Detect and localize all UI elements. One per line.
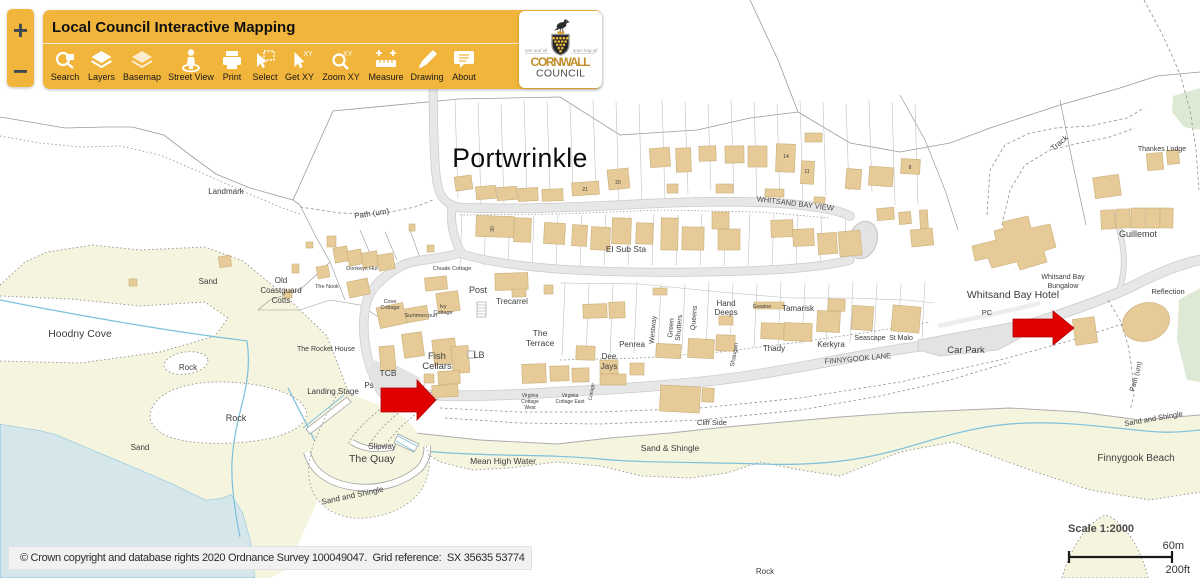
svg-text:Hoodny Cove: Hoodny Cove (48, 328, 112, 340)
svg-text:one and all: one and all (525, 48, 548, 53)
svg-text:PC: PC (982, 308, 993, 317)
svg-text:El Sub Sta: El Sub Sta (606, 244, 646, 254)
svg-text:Landing Stage: Landing Stage (307, 387, 359, 396)
svg-text:Rock: Rock (179, 363, 198, 372)
svg-text:Reflection: Reflection (1151, 287, 1184, 296)
svg-text:XY: XY (343, 51, 353, 58)
svg-text:Old: Old (275, 276, 287, 285)
svg-text:Ps: Ps (364, 381, 373, 390)
svg-text:Portwrinkle: Portwrinkle (452, 143, 587, 173)
svg-text:20: 20 (615, 180, 621, 186)
svg-text:Thady: Thady (763, 344, 785, 353)
svg-text:Trecarrel: Trecarrel (496, 297, 528, 306)
svg-text:Sand: Sand (199, 277, 218, 286)
svg-text:COUNCIL: COUNCIL (536, 68, 585, 80)
svg-text:Slipway: Slipway (368, 442, 396, 451)
svg-text:Deeps: Deeps (714, 308, 737, 317)
svg-text:Finnygook Beach: Finnygook Beach (1097, 453, 1174, 464)
svg-text:11: 11 (804, 169, 809, 175)
svg-text:Kerkyra: Kerkyra (817, 340, 845, 349)
svg-text:Mean High Water: Mean High Water (470, 456, 536, 466)
svg-text:Donkeys Hut: Donkeys Hut (346, 266, 378, 272)
svg-text:Guillemot: Guillemot (1119, 229, 1158, 239)
svg-text:Cliff Side: Cliff Side (697, 418, 727, 427)
svg-text:Sand & Shingle: Sand & Shingle (641, 443, 700, 453)
svg-text:8: 8 (909, 165, 912, 171)
svg-text:60m: 60m (1163, 540, 1184, 552)
svg-text:Cotts: Cotts (272, 296, 291, 305)
svg-text:The Quay: The Quay (349, 453, 396, 465)
svg-text:Terrace: Terrace (526, 338, 555, 348)
svg-text:The: The (533, 328, 548, 338)
svg-text:Penrea: Penrea (619, 340, 645, 349)
svg-text:Whitsand Bay: Whitsand Bay (1041, 274, 1085, 281)
svg-text:Chuate Cottage: Chuate Cottage (433, 266, 472, 272)
svg-text:Cottage East: Cottage East (556, 399, 586, 405)
svg-text:Bungalow: Bungalow (1048, 283, 1080, 290)
svg-text:Sand: Sand (131, 443, 150, 452)
svg-text:Rock: Rock (756, 567, 775, 576)
svg-text:Hand: Hand (716, 299, 735, 308)
svg-text:St Malo: St Malo (889, 335, 913, 342)
svg-text:TCB: TCB (380, 368, 397, 378)
svg-text:Jays: Jays (601, 362, 617, 371)
svg-text:Post: Post (469, 285, 488, 295)
svg-text:30: 30 (490, 226, 496, 232)
svg-text:21: 21 (582, 187, 588, 193)
svg-text:XY: XY (304, 51, 314, 58)
svg-text:Whitsand Bay Hotel: Whitsand Bay Hotel (967, 289, 1059, 301)
svg-text:onen hag oll: onen hag oll (573, 48, 599, 53)
svg-text:Cellars: Cellars (422, 361, 452, 372)
svg-text:Cottage: Cottage (380, 305, 399, 311)
svg-text:200ft: 200ft (1166, 564, 1190, 576)
svg-text:Landmark: Landmark (208, 187, 245, 196)
svg-text:LB: LB (473, 350, 484, 360)
svg-text:Rock: Rock (226, 413, 247, 423)
svg-text:Tamarisk: Tamarisk (782, 304, 815, 313)
svg-text:Gwaine: Gwaine (753, 304, 772, 310)
svg-text:Seascape: Seascape (854, 335, 885, 342)
svg-text:14: 14 (783, 154, 789, 160)
svg-text:The Nook: The Nook (315, 284, 339, 290)
svg-text:Thankes Lodge: Thankes Lodge (1138, 146, 1186, 153)
svg-text:Cottage: Cottage (433, 310, 452, 316)
svg-text:Dee: Dee (602, 352, 617, 361)
svg-text:The Rocket House: The Rocket House (297, 346, 355, 353)
svg-text:West: West (524, 405, 536, 411)
svg-text:Car Park: Car Park (947, 345, 985, 356)
svg-text:Scale 1:2000: Scale 1:2000 (1068, 523, 1134, 535)
svg-text:Coastguard: Coastguard (260, 286, 301, 295)
